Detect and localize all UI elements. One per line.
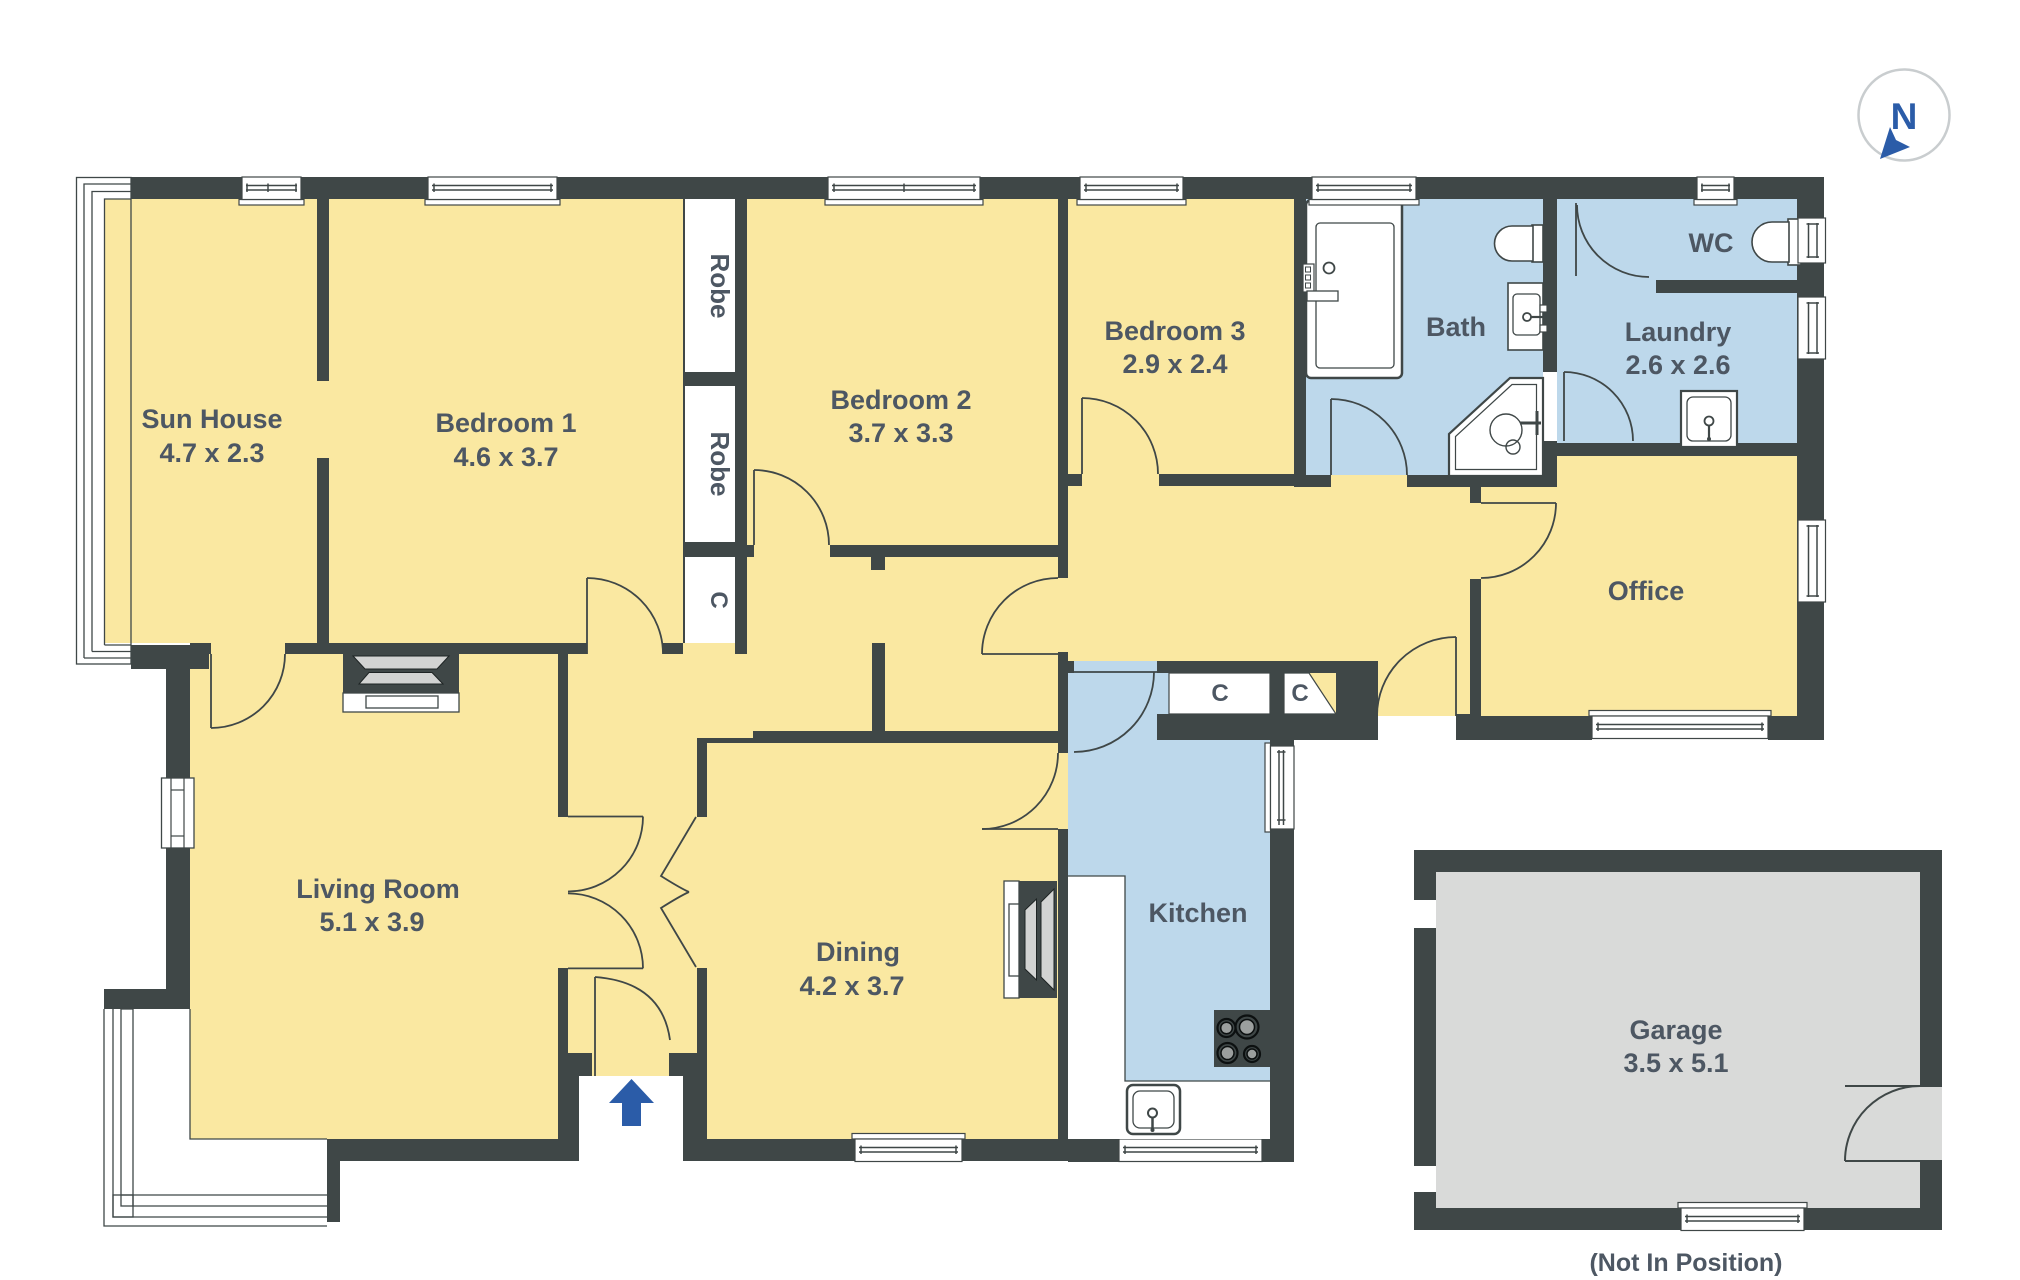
svg-text:(Not In Position): (Not In Position) (1589, 1249, 1782, 1277)
svg-text:Garage: Garage (1629, 1015, 1722, 1045)
svg-text:C: C (705, 591, 732, 608)
svg-text:Bedroom 1: Bedroom 1 (435, 408, 576, 438)
svg-text:WC: WC (1689, 228, 1734, 258)
svg-text:2.6 x 2.6: 2.6 x 2.6 (1625, 350, 1730, 380)
svg-text:Office: Office (1608, 576, 1685, 606)
svg-text:Sun House: Sun House (141, 404, 282, 434)
svg-text:4.7 x 2.3: 4.7 x 2.3 (159, 438, 264, 468)
svg-text:Robe: Robe (705, 254, 735, 319)
svg-text:C: C (1211, 680, 1228, 707)
svg-text:2.9 x 2.4: 2.9 x 2.4 (1122, 349, 1227, 379)
svg-text:Dining: Dining (816, 937, 900, 967)
svg-text:5.1 x 3.9: 5.1 x 3.9 (319, 907, 424, 937)
svg-text:Bath: Bath (1426, 312, 1486, 342)
svg-text:4.6 x 3.7: 4.6 x 3.7 (453, 442, 558, 472)
svg-text:3.7 x 3.3: 3.7 x 3.3 (848, 418, 953, 448)
svg-text:Kitchen: Kitchen (1148, 898, 1247, 928)
svg-text:4.2 x 3.7: 4.2 x 3.7 (799, 971, 904, 1001)
svg-text:Bedroom 3: Bedroom 3 (1104, 316, 1245, 346)
svg-text:Robe: Robe (705, 432, 735, 497)
svg-text:Bedroom 2: Bedroom 2 (830, 385, 971, 415)
svg-text:C: C (1291, 680, 1308, 707)
svg-text:N: N (1891, 96, 1918, 137)
svg-text:Living Room: Living Room (296, 874, 460, 904)
svg-text:Laundry: Laundry (1625, 317, 1732, 347)
svg-text:3.5 x 5.1: 3.5 x 5.1 (1623, 1048, 1728, 1078)
